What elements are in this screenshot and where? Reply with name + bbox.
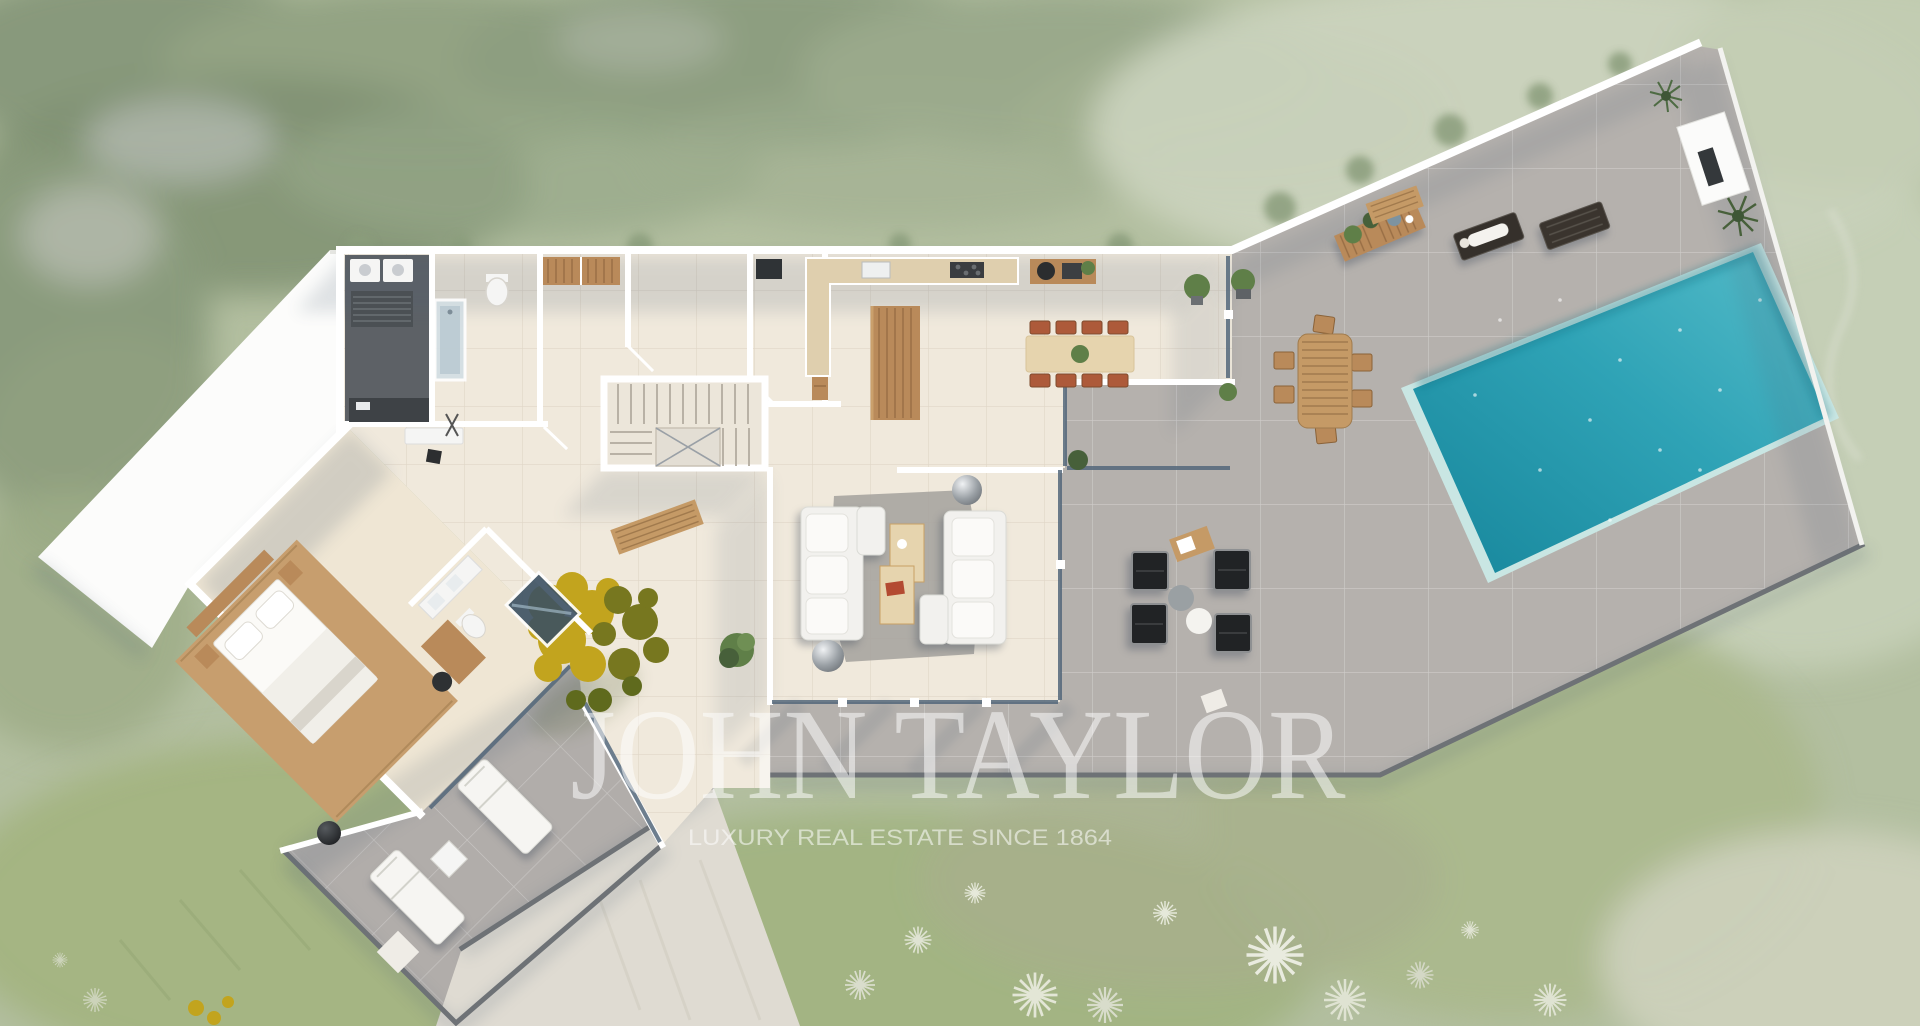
coffee-table-2 — [880, 566, 914, 624]
kitchen-sink — [862, 262, 890, 278]
sphere-lamp-2 — [952, 475, 982, 505]
notch-plant-1 — [1068, 450, 1088, 470]
cup — [897, 539, 907, 549]
kettle-grill — [317, 821, 341, 845]
bbq-console — [1030, 259, 1096, 284]
villa-aerial-render: JOHN TAYLOR LUXURY REAL ESTATE SINCE 186… — [0, 0, 1920, 1026]
watermark-title: JOHN TAYLOR — [571, 683, 1346, 827]
bbq-plant — [1081, 261, 1095, 275]
notch-plant-2 — [1219, 383, 1237, 401]
sphere-lamp-1 — [812, 640, 844, 672]
cooktop — [950, 262, 984, 278]
round-table-gray — [1168, 585, 1194, 611]
refrigerator — [756, 259, 782, 279]
stool — [426, 449, 442, 464]
table-plant — [1071, 345, 1089, 363]
red-book — [885, 581, 905, 596]
floorplan-canvas: JOHN TAYLOR LUXURY REAL ESTATE SINCE 186… — [0, 0, 1920, 1026]
watermark: JOHN TAYLOR LUXURY REAL ESTATE SINCE 186… — [571, 683, 1346, 850]
round-table-white — [1186, 608, 1212, 634]
staircase — [604, 379, 765, 468]
toilet-1 — [486, 278, 508, 306]
grill — [1037, 262, 1055, 280]
watermark-subtitle: LUXURY REAL ESTATE SINCE 1864 — [688, 825, 1112, 850]
